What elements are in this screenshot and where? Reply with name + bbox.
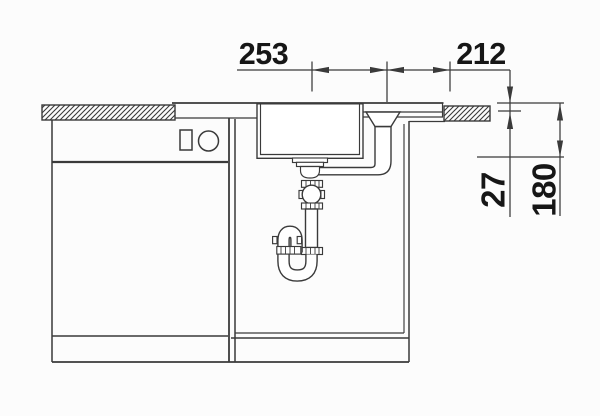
dimension-label-27: 27 xyxy=(475,172,512,208)
dimension-label-253: 253 xyxy=(239,37,288,71)
trap-outlet-coupling xyxy=(277,247,301,255)
trap-left-nub xyxy=(273,237,277,244)
sink-bowl xyxy=(257,104,363,159)
arrow-left-253 xyxy=(312,67,329,73)
sink-installation-diagram: 253 212 27 180 xyxy=(0,0,600,416)
sink xyxy=(257,103,443,158)
arrow-right-253 xyxy=(370,67,387,73)
arrow-up-27 xyxy=(507,113,513,130)
drop-pipe xyxy=(306,209,318,248)
strainer-body xyxy=(301,167,320,179)
countertop-right-section xyxy=(444,106,490,121)
technical-drawing-canvas: 253 212 27 180 xyxy=(0,0,600,416)
arrow-left-212 xyxy=(387,67,404,73)
overflow-funnel xyxy=(366,112,400,127)
arrow-down-27 xyxy=(507,87,513,104)
dimension-label-212: 212 xyxy=(456,37,505,71)
control-knob-circle xyxy=(199,131,219,151)
dimension-label-180: 180 xyxy=(526,163,563,217)
trap-right-nub xyxy=(297,237,301,244)
arrow-down-180 xyxy=(557,141,563,158)
arrow-up-180 xyxy=(557,104,563,121)
ball-joint xyxy=(302,185,321,204)
strainer-ring xyxy=(297,162,324,166)
siphon-trap xyxy=(273,181,325,276)
countertop-left-section xyxy=(42,105,175,120)
arrow-right-212 xyxy=(433,67,450,73)
control-panel-rect xyxy=(180,130,192,150)
